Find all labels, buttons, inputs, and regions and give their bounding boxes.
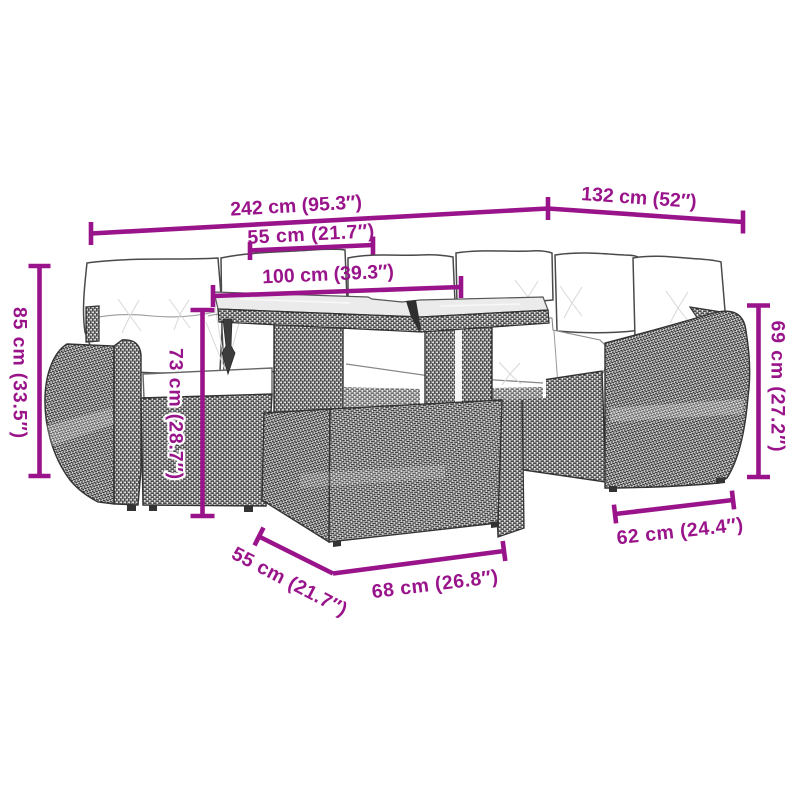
svg-text:73 cm (28.7″): 73 cm (28.7″) [165, 348, 187, 480]
svg-text:85 cm (33.5″): 85 cm (33.5″) [9, 307, 31, 439]
svg-text:69 cm (27.2″): 69 cm (27.2″) [767, 320, 789, 452]
